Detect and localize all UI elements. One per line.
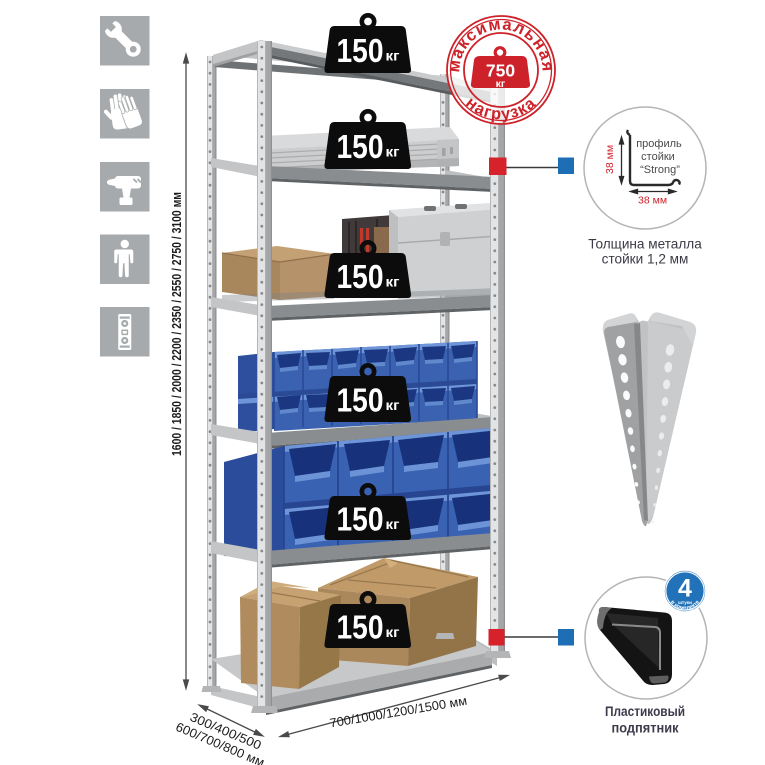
svg-text:профиль: профиль xyxy=(636,138,682,150)
svg-text:кг: кг xyxy=(386,625,400,640)
svg-text:кг: кг xyxy=(496,78,506,90)
svg-text:стойки: стойки xyxy=(641,151,675,163)
svg-text:Пластиковый: Пластиковый xyxy=(605,703,685,719)
svg-text:38 мм: 38 мм xyxy=(604,145,616,174)
svg-text:штуки: штуки xyxy=(678,600,692,605)
svg-text:кг: кг xyxy=(386,517,400,532)
svg-text:150: 150 xyxy=(337,382,384,419)
svg-text:38 мм: 38 мм xyxy=(638,195,667,207)
svg-text:подпятник: подпятник xyxy=(612,720,680,736)
svg-text:кг: кг xyxy=(386,275,400,290)
svg-text:150: 150 xyxy=(337,258,384,295)
svg-text:1600 / 1850 / 2000 / 2200 / 23: 1600 / 1850 / 2000 / 2200 / 2350 / 2550 … xyxy=(170,192,184,456)
svg-text:кг: кг xyxy=(386,145,400,160)
svg-text:150: 150 xyxy=(337,32,384,69)
svg-text:стойки 1,2 мм: стойки 1,2 мм xyxy=(602,252,689,267)
svg-text:150: 150 xyxy=(337,609,384,646)
svg-text:4: 4 xyxy=(678,575,692,603)
svg-text:150: 150 xyxy=(337,501,384,538)
svg-text:150: 150 xyxy=(337,128,384,165)
svg-text:кг: кг xyxy=(386,49,400,64)
svg-text:Толщина металла: Толщина металла xyxy=(588,237,702,252)
svg-text:кг: кг xyxy=(386,398,400,413)
svg-text:“Strong”: “Strong” xyxy=(640,164,680,176)
